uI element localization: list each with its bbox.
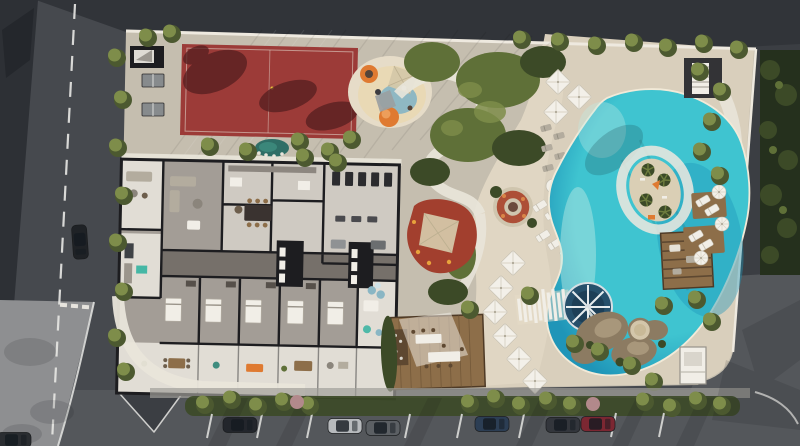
shrub-mass <box>492 130 546 166</box>
shrub-mass <box>404 42 460 82</box>
east-hedge <box>759 50 800 275</box>
orange-sofa <box>246 364 263 372</box>
parked-car <box>0 433 31 446</box>
island-tent <box>648 215 655 220</box>
site-plan-render <box>0 0 800 446</box>
parked-car <box>581 417 615 432</box>
parked-car <box>366 421 400 436</box>
render-canvas <box>0 0 800 446</box>
round-umbrella <box>694 251 708 265</box>
round-umbrella <box>712 185 726 199</box>
shrub-mass <box>474 101 506 123</box>
parked-car <box>546 418 580 433</box>
shrub-mass <box>410 158 450 186</box>
dining-deck <box>380 311 486 392</box>
parked-car <box>223 418 257 433</box>
blossom-tree <box>586 397 600 411</box>
kids-splash-area <box>407 199 477 273</box>
dining-table <box>244 205 271 222</box>
round-umbrella <box>715 217 729 231</box>
deck-table <box>428 351 460 362</box>
parked-car <box>475 417 509 432</box>
deck-table <box>415 334 441 344</box>
pool-pavilion <box>680 347 706 384</box>
amenity-building <box>117 153 402 399</box>
shrub-mass <box>428 279 468 305</box>
driving-car <box>71 225 88 260</box>
parked-car <box>328 419 362 434</box>
blossom-tree <box>290 395 304 409</box>
